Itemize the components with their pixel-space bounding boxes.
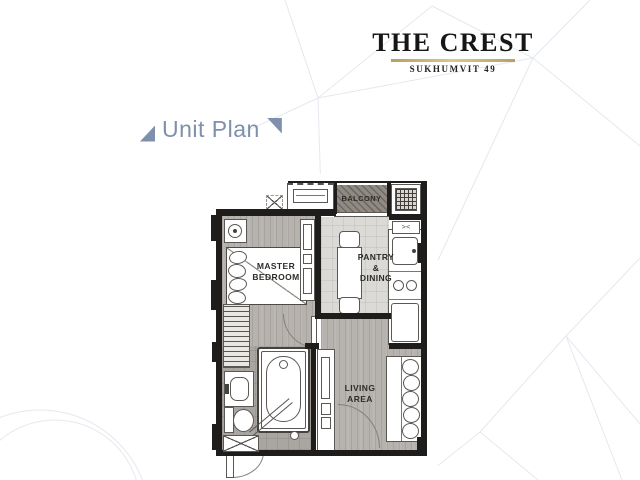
pantry-dining-label: PANTRY & DINING — [352, 252, 400, 284]
wardrobe-shelf — [303, 224, 312, 250]
condenser-grille-icon — [395, 188, 417, 211]
stove-burner-icon — [406, 280, 417, 291]
wall — [389, 214, 422, 220]
wall — [216, 210, 222, 456]
floor-plan: >< — [0, 0, 640, 480]
pantry-dining-line2: & — [352, 263, 400, 274]
living-area-label: LIVING AREA — [330, 383, 390, 404]
master-bedroom-line2: BEDROOM — [240, 272, 312, 283]
dresser — [223, 304, 250, 368]
bathtub-drain — [279, 360, 288, 369]
wall-stub — [305, 343, 319, 349]
vent-glyph: >< — [393, 222, 419, 233]
faucet-dot — [412, 249, 416, 253]
wall-pillar — [211, 280, 222, 310]
vanity-basin — [230, 377, 249, 401]
balcony-slider-door — [334, 212, 389, 217]
pantry-dining-line1: PANTRY — [352, 252, 400, 263]
pantry-dining-line3: DINING — [352, 273, 400, 284]
duct-vent: >< — [392, 221, 420, 234]
counter-divider — [389, 299, 421, 300]
wall — [389, 343, 427, 349]
entry-threshold — [223, 435, 259, 452]
balcony-label: BALCONY — [334, 194, 389, 203]
living-area-line1: LIVING — [330, 383, 390, 394]
wall — [288, 181, 427, 183]
wall-pillar — [212, 424, 222, 450]
wall-pillar — [212, 342, 222, 362]
living-area-line2: AREA — [330, 394, 390, 405]
dining-chair — [339, 231, 360, 248]
condensing-unit — [293, 189, 328, 203]
master-bedroom-label: MASTER BEDROOM — [240, 261, 312, 282]
condenser-louver-line — [296, 195, 325, 196]
vanity-faucet — [225, 384, 229, 394]
balcony-label-text: BALCONY — [342, 194, 382, 203]
tv-icon — [321, 357, 330, 399]
wall — [315, 313, 391, 319]
lamp-center-dot — [233, 229, 237, 233]
wall-pillar — [418, 243, 427, 263]
dining-chair — [339, 297, 360, 314]
wall-pillar — [211, 215, 222, 241]
wall — [216, 209, 336, 216]
floor-drain — [290, 431, 299, 440]
console-cabinet — [321, 417, 331, 429]
page: THE CREST SUKHUMVIT 49 Unit Plan — [0, 0, 640, 480]
ac-dashed-marker — [266, 195, 283, 210]
refrigerator — [391, 303, 419, 342]
wall — [311, 349, 316, 450]
console-cabinet — [321, 403, 331, 415]
master-bedroom-line1: MASTER — [240, 261, 312, 272]
wall — [315, 216, 321, 316]
